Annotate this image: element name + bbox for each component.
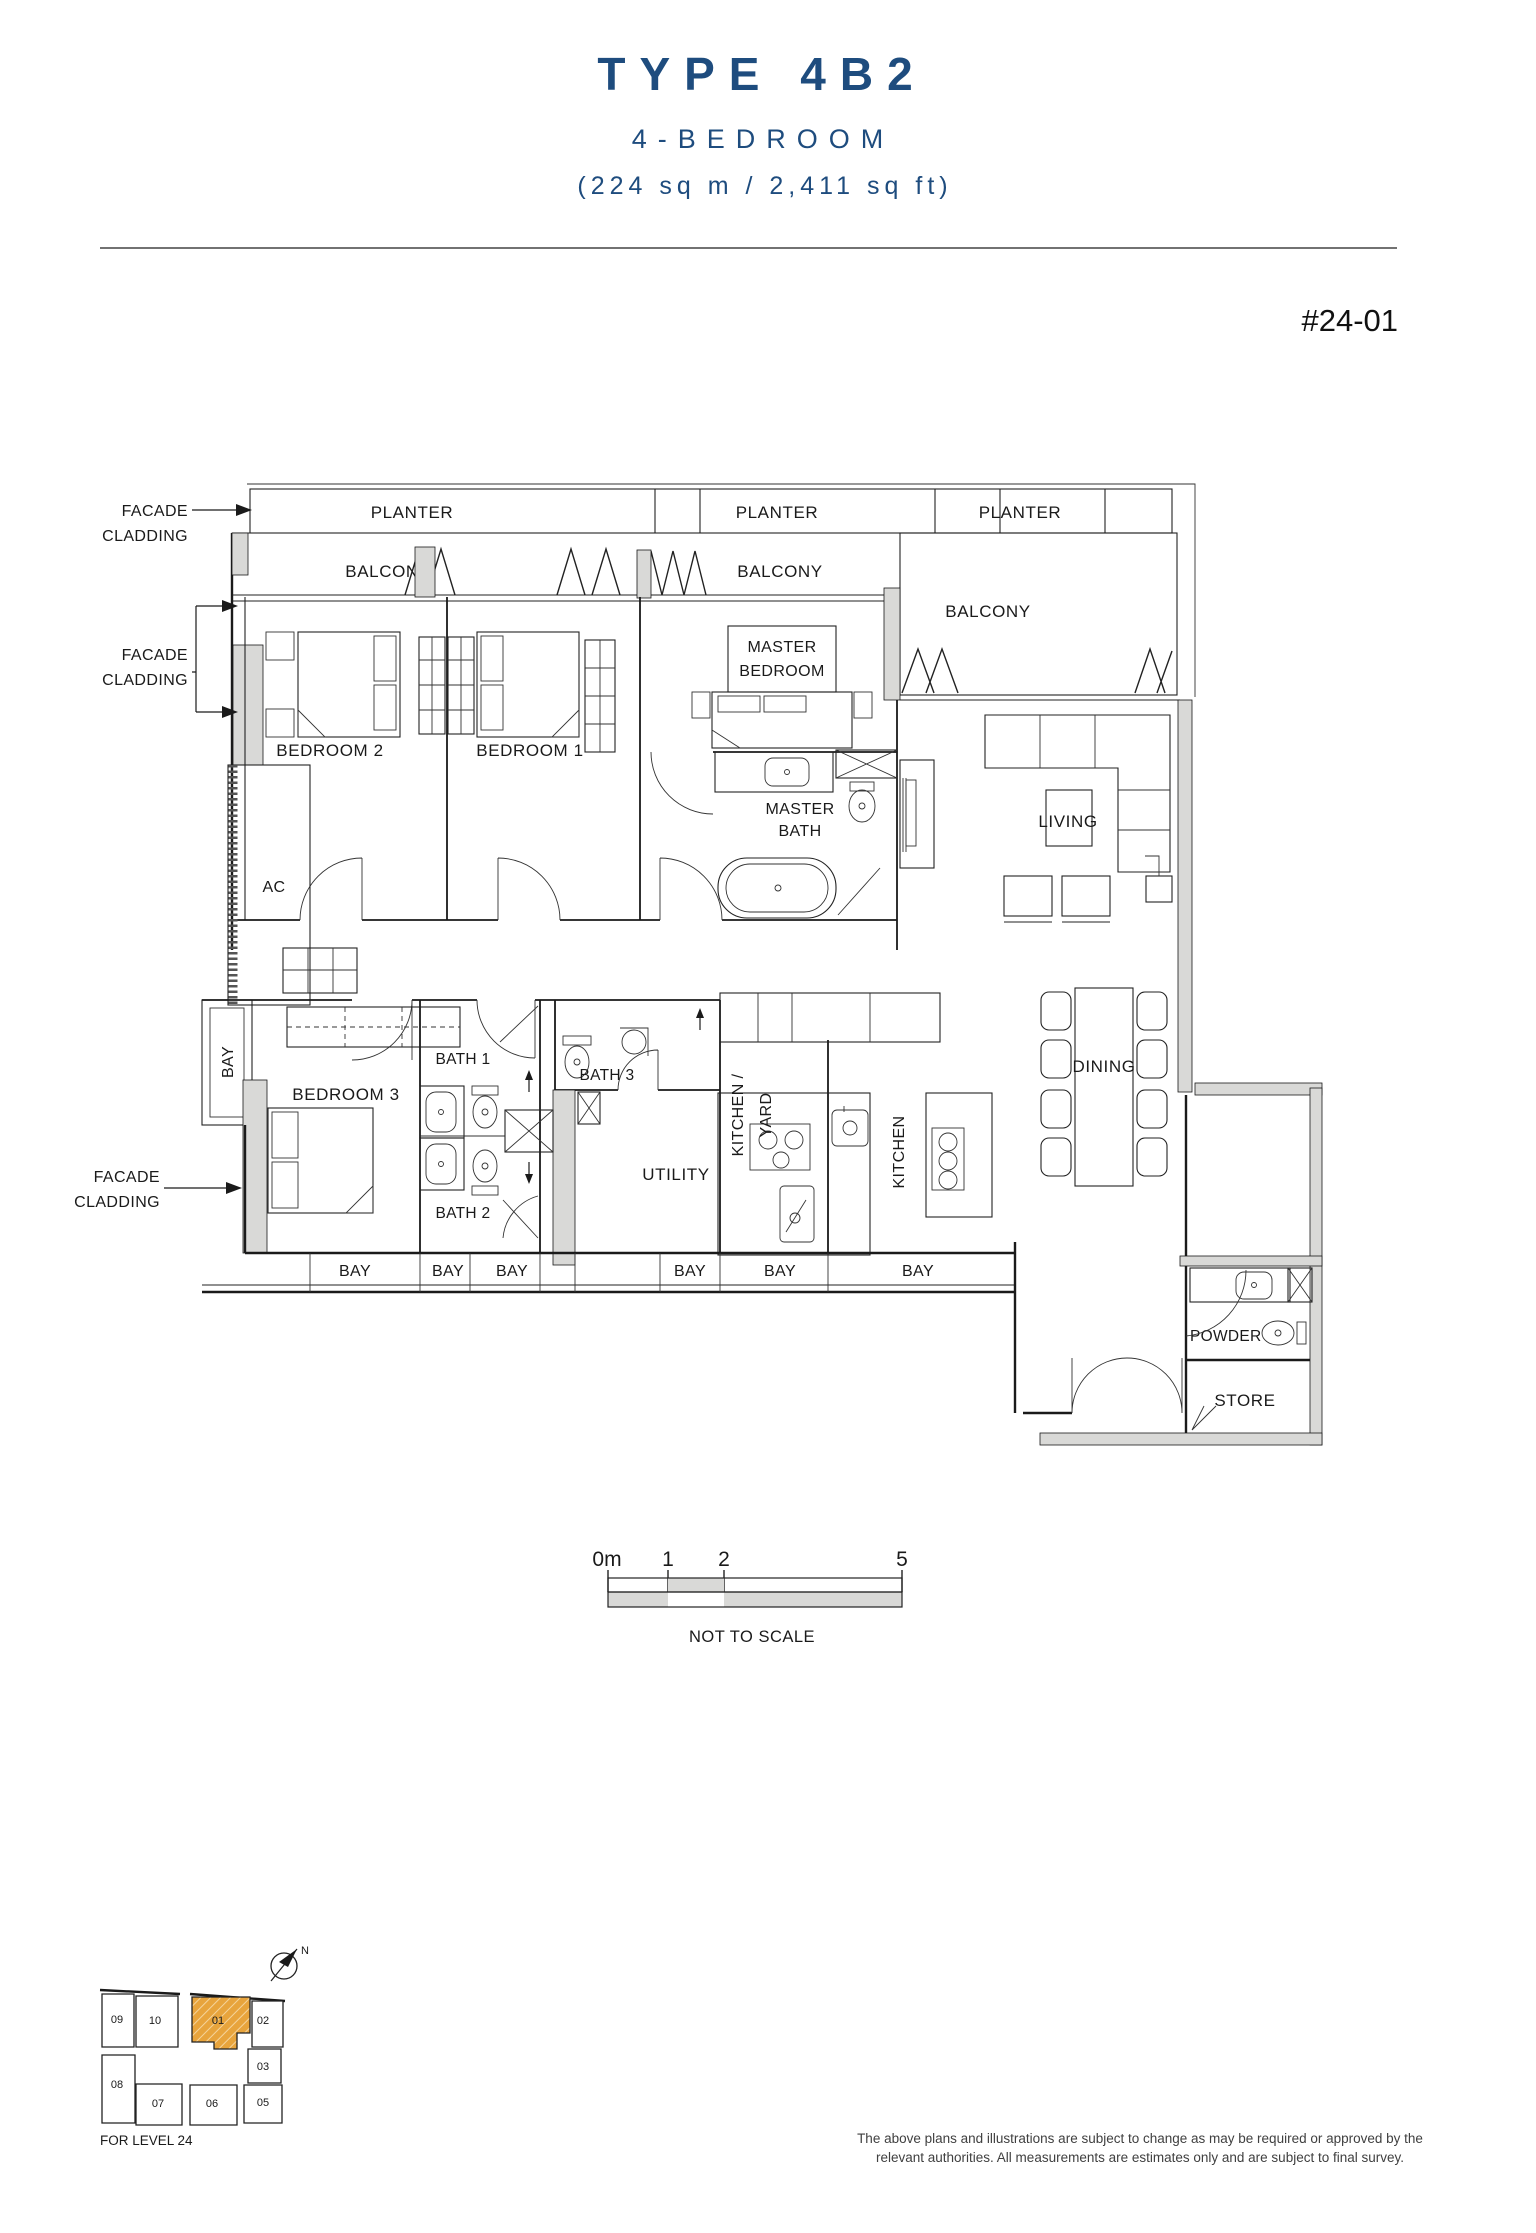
label-planter-1: PLANTER <box>371 503 454 522</box>
sink-icon <box>426 1144 456 1184</box>
sink-icon <box>832 1106 868 1146</box>
bedroom2: BEDROOM 2 <box>266 632 445 760</box>
site-label-07: 07 <box>152 2098 164 2110</box>
north-label: N <box>301 1945 309 1957</box>
dining: DINING <box>1041 988 1167 1186</box>
facade-cladding-3: FACADE CLADDING <box>74 1169 242 1211</box>
facade-label-1b: CLADDING <box>102 528 188 545</box>
label-bath1: BATH 1 <box>436 1051 491 1068</box>
powder-column <box>1288 1268 1312 1302</box>
label-utility: UTILITY <box>642 1165 710 1184</box>
label-bay-5: BAY <box>764 1263 796 1280</box>
counter <box>828 1093 870 1255</box>
unit-number: #24-01 <box>1301 303 1398 338</box>
toilet-icon <box>1262 1321 1306 1345</box>
page-canvas: TYPE 4B2 4-BEDROOM (224 sq m / 2,411 sq … <box>0 0 1536 2233</box>
bed <box>268 1108 373 1213</box>
tv-console <box>900 760 934 868</box>
shower-door <box>500 1006 538 1042</box>
towel-rail <box>903 778 906 852</box>
floor-plan: PLANTER PLANTER PLANTER BALCONY BALCONY … <box>74 484 1322 1445</box>
label-bedroom1: BEDROOM 1 <box>476 741 583 760</box>
right-wall <box>1178 700 1192 1092</box>
label-bedroom2: BEDROOM 2 <box>276 741 383 760</box>
bedroom3: BEDROOM 3 <box>268 1007 460 1213</box>
label-living: LIVING <box>1038 812 1097 831</box>
facade-cladding-1: FACADE CLADDING <box>102 503 252 545</box>
disclaimer-line1: The above plans and illustrations are su… <box>857 2131 1423 2146</box>
site-plan: N 09 10 01 02 03 05 06 07 08 FOR LEVEL 2… <box>100 1945 309 2148</box>
compass-icon: N <box>271 1945 309 1981</box>
side-table <box>1145 856 1172 902</box>
bath2: BATH 2 <box>420 1138 538 1238</box>
arrow-icon <box>222 600 238 612</box>
planter-band: PLANTER PLANTER PLANTER <box>250 489 1172 533</box>
scale-bar: 0m 1 2 5 NOT TO SCALE <box>592 1548 907 1646</box>
level-note: FOR LEVEL 24 <box>100 2133 193 2148</box>
site-label-08: 08 <box>111 2079 123 2091</box>
column <box>553 1090 575 1265</box>
ottomans <box>1004 876 1110 922</box>
label-master-bedroom-1: MASTER <box>747 639 816 656</box>
wall <box>1195 1083 1322 1095</box>
tv-icon <box>906 780 916 846</box>
facade-label-2b: CLADDING <box>102 672 188 689</box>
bed <box>477 632 579 737</box>
master-bath: MASTER BATH <box>715 750 906 918</box>
wall <box>1040 1433 1322 1445</box>
bath3: BATH 3 <box>563 1008 704 1084</box>
unit-area: (224 sq m / 2,411 sq ft) <box>577 172 952 200</box>
laundry-sink-icon <box>780 1186 814 1242</box>
vanity <box>420 1138 464 1190</box>
closet <box>283 948 357 993</box>
label-bay-6: BAY <box>902 1263 934 1280</box>
facade-label-2a: FACADE <box>122 647 188 664</box>
site-label-01: 01 <box>212 2015 224 2027</box>
store-room: STORE <box>1186 1360 1310 1430</box>
toilet-icon <box>472 1086 498 1128</box>
wardrobe <box>448 637 615 752</box>
label-bay-3: BAY <box>496 1263 528 1280</box>
floorplan-page: TYPE 4B2 4-BEDROOM (224 sq m / 2,411 sq … <box>0 0 1536 2233</box>
not-to-scale-note: NOT TO SCALE <box>689 1628 815 1646</box>
master-bedroom: MASTER BEDROOM <box>692 626 872 748</box>
site-label-03: 03 <box>257 2061 269 2073</box>
sink-icon <box>620 1028 648 1056</box>
label-store: STORE <box>1214 1391 1275 1410</box>
label-dining: DINING <box>1072 1057 1135 1076</box>
facade-label-3a: FACADE <box>94 1169 160 1186</box>
bay-band: BAY BAY BAY BAY BAY BAY <box>202 1253 1015 1292</box>
shower-icon <box>836 750 897 778</box>
shower-shaft <box>505 1070 553 1184</box>
label-bay-2: BAY <box>432 1263 464 1280</box>
label-bay-left: BAY <box>220 1046 237 1078</box>
column <box>233 645 263 765</box>
column <box>884 588 900 700</box>
label-master-bath-1: MASTER <box>765 801 834 818</box>
label-master-bath-2: BATH <box>778 823 821 840</box>
column <box>243 1080 267 1253</box>
wardrobe <box>419 637 445 734</box>
entry-wing: POWDER STORE <box>1015 1083 1322 1445</box>
bedroom1: BEDROOM 1 <box>448 632 615 760</box>
label-bath2: BATH 2 <box>436 1205 491 1222</box>
bath1: BATH 1 <box>420 1006 538 1138</box>
arrow-icon <box>226 1182 242 1194</box>
label-kitchen: KITCHEN <box>891 1115 908 1188</box>
header: TYPE 4B2 4-BEDROOM (224 sq m / 2,411 sq … <box>100 48 1398 338</box>
scale-tick-2: 2 <box>718 1548 730 1571</box>
label-bath3: BATH 3 <box>580 1067 635 1084</box>
facade-label-1a: FACADE <box>122 503 188 520</box>
label-kitchen-yard-1: KITCHEN / <box>730 1073 747 1156</box>
disclaimer-line2: relevant authorities. All measurements a… <box>876 2150 1404 2165</box>
label-bay-1: BAY <box>339 1263 371 1280</box>
site-label-02: 02 <box>257 2015 269 2027</box>
site-label-05: 05 <box>257 2097 269 2109</box>
label-master-bedroom-2: BEDROOM <box>739 663 824 680</box>
label-bedroom3: BEDROOM 3 <box>292 1085 399 1104</box>
facade-cladding-2: FACADE CLADDING <box>102 600 238 718</box>
column <box>637 550 651 598</box>
label-ac: AC <box>262 879 285 896</box>
living-room: LIVING <box>900 715 1172 922</box>
site-label-10: 10 <box>149 2015 161 2027</box>
column <box>415 547 435 597</box>
upper-cabinets <box>720 993 940 1042</box>
page-title: TYPE 4B2 <box>597 48 926 100</box>
scale-tick-5: 5 <box>896 1548 908 1571</box>
label-bay-4: BAY <box>674 1263 706 1280</box>
bed <box>298 632 400 737</box>
wall <box>1310 1088 1322 1445</box>
column <box>232 533 248 575</box>
bed <box>712 692 852 748</box>
label-balcony-3: BALCONY <box>945 602 1030 621</box>
facade-label-3b: CLADDING <box>74 1194 160 1211</box>
page-subtitle: 4-BEDROOM <box>632 124 895 154</box>
site-label-06: 06 <box>206 2098 218 2110</box>
ac-ledge: AC <box>228 765 310 1005</box>
disclaimer: The above plans and illustrations are su… <box>857 2131 1423 2165</box>
toilet-icon <box>472 1150 498 1195</box>
island <box>926 1093 992 1217</box>
overhead-wardrobe <box>287 1007 460 1047</box>
powder-room: POWDER <box>1186 1268 1312 1345</box>
kitchen: KITCHEN <box>828 1093 992 1255</box>
label-planter-3: PLANTER <box>979 503 1062 522</box>
label-planter-2: PLANTER <box>736 503 819 522</box>
label-kitchen-yard-2: YARD <box>758 1093 775 1138</box>
label-balcony-2: BALCONY <box>737 562 822 581</box>
shower-door <box>838 868 880 915</box>
vanity <box>420 1086 464 1138</box>
wall <box>1180 1256 1322 1266</box>
label-powder: POWDER <box>1190 1328 1262 1345</box>
site-label-09: 09 <box>111 2014 123 2026</box>
bathtub-icon <box>718 858 836 918</box>
scale-tick-1: 1 <box>662 1548 674 1571</box>
dining-table <box>1075 988 1133 1186</box>
toilet-icon <box>849 782 875 822</box>
utility: UTILITY <box>578 1092 710 1184</box>
sink-icon <box>765 758 809 786</box>
scale-tick-0: 0m <box>592 1548 621 1571</box>
sink-icon <box>426 1092 456 1132</box>
